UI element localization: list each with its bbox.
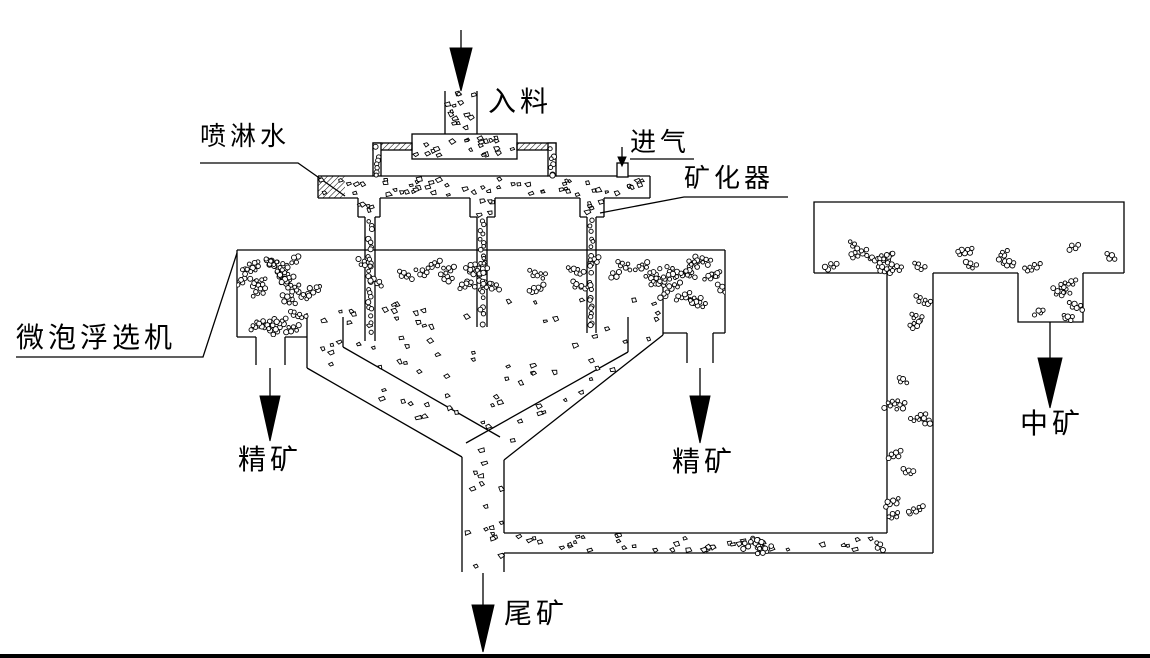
label-tailings: 尾矿 — [504, 600, 568, 628]
mineralizer-leader-line — [600, 197, 788, 213]
label-concentrate-right: 精矿 — [672, 448, 736, 476]
concentrate-left-arrow — [260, 396, 280, 441]
label-mineralizer: 矿化器 — [684, 166, 774, 192]
diagram-stage: 入料 喷淋水 进气 矿化器 微泡浮选机 精矿 精矿 中矿 尾矿 — [0, 0, 1150, 658]
structure — [16, 30, 1124, 607]
label-spray-water: 喷淋水 — [200, 124, 290, 150]
label-air-inlet: 进气 — [630, 130, 690, 156]
label-middlings: 中矿 — [1020, 410, 1084, 438]
label-concentrate-left: 精矿 — [238, 446, 302, 474]
tailings-arrow — [472, 605, 494, 652]
middlings-arrow — [1038, 358, 1062, 408]
bottom-pipe — [504, 533, 933, 553]
funnel-walls — [307, 335, 663, 460]
label-flotation-machine: 微泡浮选机 — [16, 324, 176, 352]
feed-arrow — [450, 48, 472, 91]
label-feed: 入料 — [488, 88, 552, 116]
image-bottom-border — [0, 654, 1150, 658]
pipe-particles — [319, 91, 1117, 568]
concentrate-right-arrow — [690, 396, 710, 443]
